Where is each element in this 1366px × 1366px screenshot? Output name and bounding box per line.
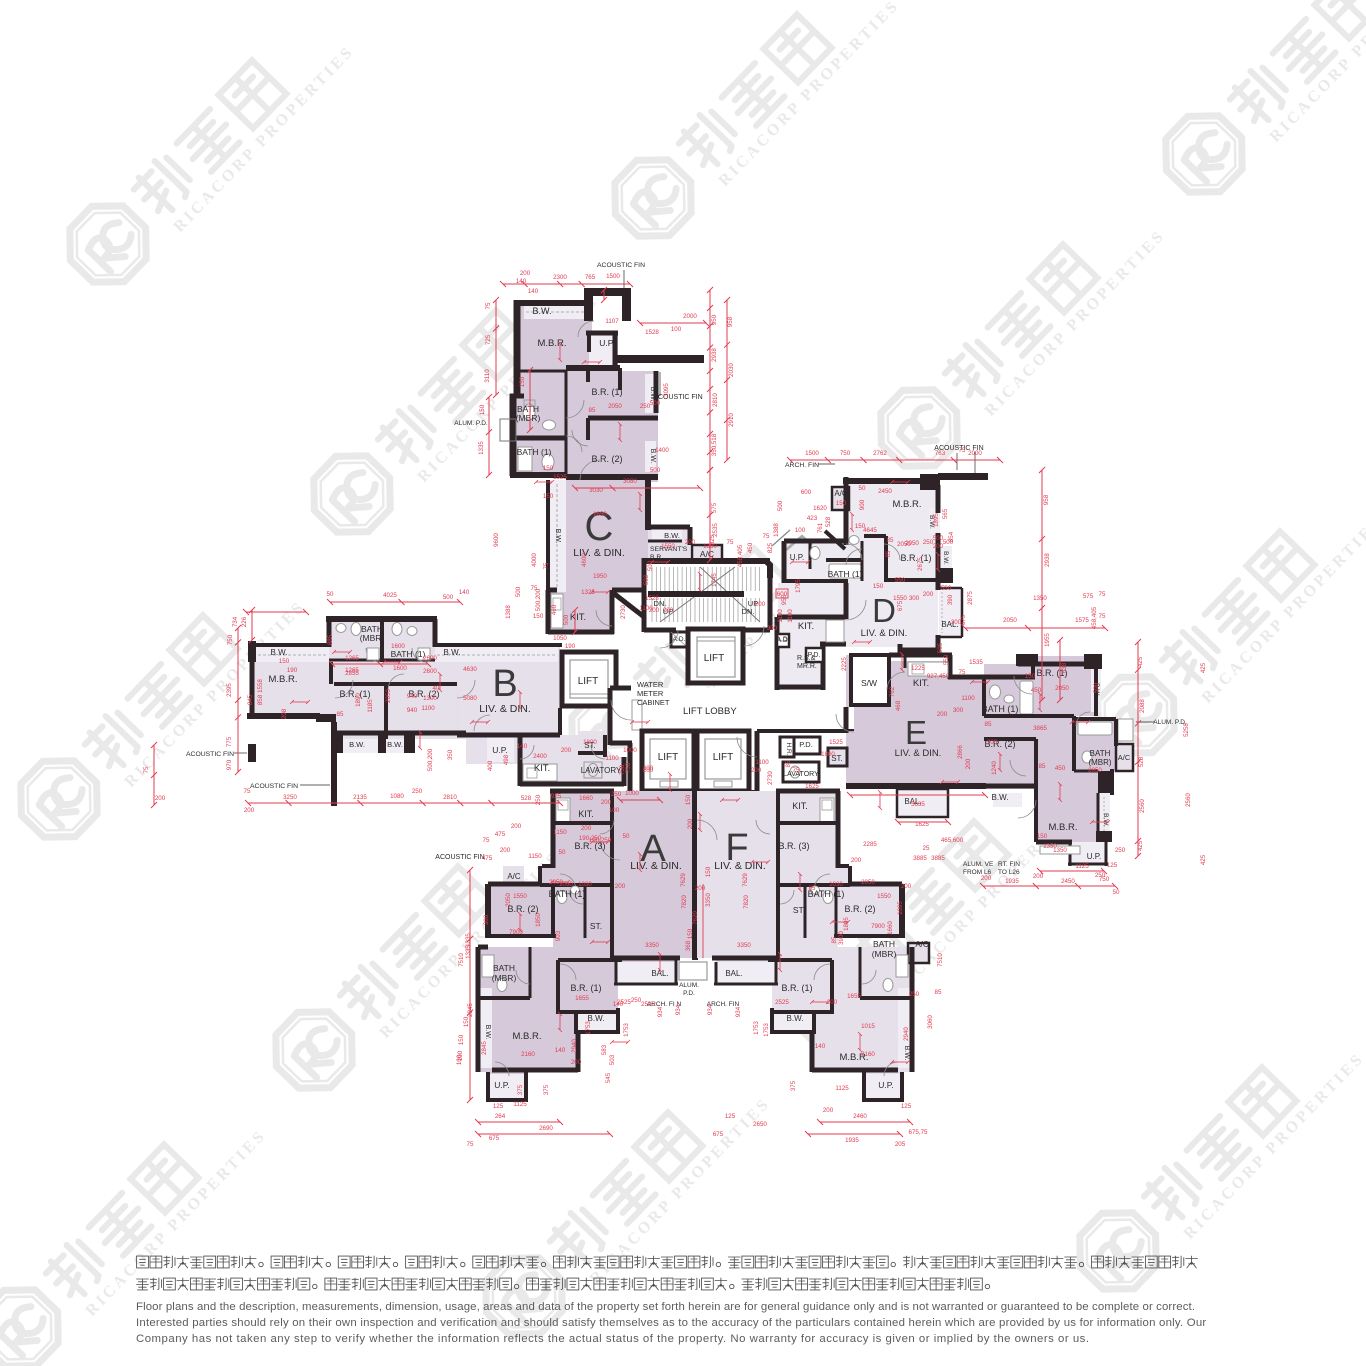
svg-text:500,200: 500,200 xyxy=(427,748,434,771)
svg-text:1335: 1335 xyxy=(465,933,472,947)
svg-text:208: 208 xyxy=(281,708,288,719)
svg-text:U.P.: U.P. xyxy=(494,1080,509,1090)
svg-text:955: 955 xyxy=(781,594,788,605)
svg-text:125: 125 xyxy=(493,1103,504,1110)
svg-text:934: 934 xyxy=(657,1006,664,1017)
svg-text:140: 140 xyxy=(516,278,527,285)
svg-text:200: 200 xyxy=(685,539,696,546)
svg-text:2050: 2050 xyxy=(1055,685,1069,692)
svg-text:375: 375 xyxy=(790,1080,797,1091)
svg-text:200: 200 xyxy=(155,795,166,802)
svg-text:3885: 3885 xyxy=(931,855,945,862)
svg-text:1528: 1528 xyxy=(645,329,659,336)
svg-text:75: 75 xyxy=(959,669,966,676)
svg-text:675: 675 xyxy=(489,1135,500,1142)
svg-text:200: 200 xyxy=(751,767,762,774)
svg-text:368: 368 xyxy=(685,940,692,951)
svg-text:100: 100 xyxy=(671,326,682,333)
svg-text:75: 75 xyxy=(483,837,490,844)
svg-text:1660: 1660 xyxy=(887,921,894,935)
svg-text:7629: 7629 xyxy=(680,873,687,887)
svg-text:550: 550 xyxy=(895,577,906,584)
svg-text:200: 200 xyxy=(695,885,706,892)
svg-text:2866: 2866 xyxy=(957,745,964,759)
svg-text:2560: 2560 xyxy=(1139,799,1146,813)
svg-text:LIFT: LIFT xyxy=(658,752,679,763)
svg-text:250: 250 xyxy=(412,788,423,795)
svg-text:734: 734 xyxy=(232,616,239,627)
svg-text:U.P.: U.P. xyxy=(599,338,614,348)
svg-text:P.D.: P.D. xyxy=(683,990,695,997)
svg-text:M.B.R.: M.B.R. xyxy=(537,338,566,349)
svg-text:125: 125 xyxy=(1107,862,1118,869)
svg-text:150: 150 xyxy=(705,866,712,877)
svg-text:LIFT: LIFT xyxy=(704,653,725,664)
svg-text:1850: 1850 xyxy=(535,913,542,927)
svg-text:1100: 1100 xyxy=(777,609,784,623)
svg-text:2160: 2160 xyxy=(861,1051,875,1058)
svg-text:1125: 1125 xyxy=(835,1085,849,1092)
svg-text:1000: 1000 xyxy=(625,790,639,797)
svg-text:1225: 1225 xyxy=(911,665,925,672)
svg-text:B.W.: B.W. xyxy=(349,740,365,749)
svg-text:2525: 2525 xyxy=(641,1001,655,1008)
svg-text:1325: 1325 xyxy=(581,589,595,596)
svg-text:2460: 2460 xyxy=(853,1113,867,1120)
svg-text:1795: 1795 xyxy=(795,579,802,593)
svg-text:2650: 2650 xyxy=(753,1121,767,1128)
svg-text:140: 140 xyxy=(815,1043,826,1050)
svg-text:1660: 1660 xyxy=(579,795,593,802)
svg-text:450: 450 xyxy=(1055,765,1066,772)
svg-text:1150: 1150 xyxy=(553,829,567,836)
svg-text:B.R. (2): B.R. (2) xyxy=(507,904,538,914)
svg-text:1753: 1753 xyxy=(623,1023,630,1037)
svg-text:1500: 1500 xyxy=(606,273,620,280)
svg-text:B.W.: B.W. xyxy=(387,740,403,749)
svg-text:3350: 3350 xyxy=(737,942,751,949)
svg-text:300: 300 xyxy=(951,619,962,626)
svg-text:1300: 1300 xyxy=(423,695,437,702)
svg-text:475: 475 xyxy=(495,831,506,838)
svg-text:TO L26: TO L26 xyxy=(998,869,1020,876)
svg-text:100: 100 xyxy=(609,807,620,814)
svg-text:2525: 2525 xyxy=(775,999,789,1006)
svg-text:150: 150 xyxy=(1037,833,1048,840)
svg-text:M.B.R.: M.B.R. xyxy=(512,1031,541,1042)
svg-text:WATER: WATER xyxy=(637,680,664,689)
svg-text:200: 200 xyxy=(965,758,972,769)
svg-text:ST.: ST. xyxy=(590,921,602,931)
svg-text:2910: 2910 xyxy=(728,413,735,427)
svg-text:1015: 1015 xyxy=(861,1023,875,1030)
svg-text:200: 200 xyxy=(581,825,592,832)
svg-text:250: 250 xyxy=(909,991,920,998)
svg-text:50: 50 xyxy=(327,591,334,598)
svg-text:P.D.: P.D. xyxy=(808,652,821,659)
svg-text:2285: 2285 xyxy=(863,841,877,848)
svg-text:638: 638 xyxy=(1061,662,1068,673)
svg-text:250: 250 xyxy=(611,791,622,798)
svg-text:B.W.: B.W. xyxy=(1102,813,1109,827)
svg-text:200: 200 xyxy=(923,591,934,598)
svg-text:1890: 1890 xyxy=(355,693,362,707)
svg-text:50: 50 xyxy=(559,849,566,856)
svg-text:BATH (1): BATH (1) xyxy=(828,569,863,579)
svg-text:500: 500 xyxy=(563,614,570,625)
svg-text:E: E xyxy=(905,714,927,751)
svg-text:205: 205 xyxy=(895,1141,906,1148)
svg-text:925: 925 xyxy=(551,793,562,800)
svg-text:458,405: 458,405 xyxy=(737,544,744,567)
svg-text:250: 250 xyxy=(535,794,542,805)
svg-text:763: 763 xyxy=(935,450,946,457)
svg-text:190,250: 190,250 xyxy=(589,837,612,844)
svg-text:600: 600 xyxy=(801,489,812,496)
svg-text:75: 75 xyxy=(244,788,251,795)
svg-text:2940: 2940 xyxy=(571,1039,578,1053)
svg-text:75: 75 xyxy=(467,1141,474,1148)
svg-text:ST.: ST. xyxy=(793,905,805,915)
svg-text:1655: 1655 xyxy=(847,993,861,1000)
svg-text:B.W.: B.W. xyxy=(903,1046,910,1061)
svg-text:300: 300 xyxy=(767,625,778,632)
svg-text:1558: 1558 xyxy=(257,679,264,693)
svg-text:500: 500 xyxy=(943,539,954,546)
svg-text:75: 75 xyxy=(793,767,800,774)
svg-text:A/C: A/C xyxy=(507,872,521,881)
svg-text:550: 550 xyxy=(941,585,952,592)
svg-text:LIV. & DIN.: LIV. & DIN. xyxy=(479,703,531,715)
svg-text:1185: 1185 xyxy=(367,699,374,713)
svg-text:675,75: 675,75 xyxy=(909,1129,928,1136)
svg-text:ACOUSTIC FIN: ACOUSTIC FIN xyxy=(250,783,298,790)
svg-text:375: 375 xyxy=(543,1084,550,1095)
svg-text:2135: 2135 xyxy=(353,794,367,801)
svg-text:LIV. & DIN.: LIV. & DIN. xyxy=(895,748,942,759)
svg-text:885: 885 xyxy=(327,634,334,645)
svg-text:200: 200 xyxy=(987,739,998,746)
svg-text:190: 190 xyxy=(287,667,298,674)
svg-text:KIT.: KIT. xyxy=(798,621,814,632)
svg-text:1528: 1528 xyxy=(645,595,659,602)
svg-text:50: 50 xyxy=(623,833,630,840)
svg-text:528: 528 xyxy=(1138,756,1145,767)
svg-text:1550: 1550 xyxy=(877,893,891,900)
svg-text:1625: 1625 xyxy=(805,783,819,790)
svg-text:940: 940 xyxy=(407,693,418,700)
svg-text:475: 475 xyxy=(482,855,493,862)
svg-text:(MBR): (MBR) xyxy=(360,633,385,643)
svg-text:1895: 1895 xyxy=(933,513,940,527)
svg-text:M.B.R.: M.B.R. xyxy=(268,674,297,685)
svg-text:450: 450 xyxy=(1031,687,1042,694)
svg-text:2600: 2600 xyxy=(423,668,437,675)
svg-text:450: 450 xyxy=(747,542,754,553)
svg-text:350,518: 350,518 xyxy=(711,433,718,456)
svg-text:845: 845 xyxy=(247,694,254,705)
svg-text:4025: 4025 xyxy=(383,592,397,599)
svg-text:300: 300 xyxy=(909,595,920,602)
svg-text:1600: 1600 xyxy=(393,665,407,672)
svg-text:7510: 7510 xyxy=(937,953,944,967)
svg-text:2875: 2875 xyxy=(967,591,974,605)
svg-text:LAVATORY: LAVATORY xyxy=(783,771,819,778)
svg-text:545: 545 xyxy=(605,1072,612,1083)
svg-text:200: 200 xyxy=(601,799,612,806)
svg-text:5258: 5258 xyxy=(1183,723,1190,737)
svg-text:500: 500 xyxy=(515,586,522,597)
svg-text:B.W.: B.W. xyxy=(942,551,949,565)
svg-text:BATH (1): BATH (1) xyxy=(549,889,586,899)
svg-text:300: 300 xyxy=(953,707,964,714)
svg-text:498: 498 xyxy=(503,754,510,765)
svg-text:ACOUSTIC FIN: ACOUSTIC FIN xyxy=(597,262,645,269)
svg-text:200: 200 xyxy=(561,747,572,754)
svg-text:7900: 7900 xyxy=(871,923,885,930)
svg-text:675: 675 xyxy=(713,1131,724,1138)
svg-text:BATH (1): BATH (1) xyxy=(982,704,1019,714)
svg-text:150: 150 xyxy=(836,500,847,507)
svg-text:85: 85 xyxy=(831,936,838,943)
svg-text:B.W.: B.W. xyxy=(484,1025,491,1040)
svg-text:1955: 1955 xyxy=(1044,633,1051,647)
svg-text:B.R. (1): B.R. (1) xyxy=(591,387,622,397)
svg-text:1265: 1265 xyxy=(345,655,359,662)
svg-text:A/C: A/C xyxy=(1118,753,1131,762)
svg-text:559: 559 xyxy=(943,654,950,665)
svg-text:1400: 1400 xyxy=(655,447,669,454)
svg-text:200: 200 xyxy=(901,883,912,890)
svg-text:75: 75 xyxy=(763,533,770,540)
svg-text:2225: 2225 xyxy=(841,657,848,671)
svg-text:2450: 2450 xyxy=(1061,878,1075,885)
svg-text:200: 200 xyxy=(823,1107,834,1114)
svg-text:3110: 3110 xyxy=(484,369,491,383)
svg-text:3080: 3080 xyxy=(623,478,637,485)
svg-text:BATH: BATH xyxy=(873,939,895,949)
svg-text:7900: 7900 xyxy=(509,929,523,936)
svg-text:LIFT: LIFT xyxy=(578,676,599,687)
svg-text:7620: 7620 xyxy=(692,911,699,925)
svg-text:2160: 2160 xyxy=(521,1051,535,1058)
svg-text:KIT.: KIT. xyxy=(792,801,808,811)
svg-text:4000: 4000 xyxy=(531,553,538,567)
svg-text:DN.: DN. xyxy=(742,607,755,616)
svg-text:1525: 1525 xyxy=(829,739,843,746)
svg-text:1753: 1753 xyxy=(763,1023,770,1037)
svg-text:75: 75 xyxy=(543,562,550,569)
svg-text:150: 150 xyxy=(543,493,554,500)
svg-text:CABINET: CABINET xyxy=(637,698,670,707)
svg-text:200: 200 xyxy=(500,847,511,854)
svg-text:2300: 2300 xyxy=(553,274,567,281)
svg-text:1095: 1095 xyxy=(897,901,904,915)
svg-text:503: 503 xyxy=(643,574,650,585)
svg-text:150: 150 xyxy=(873,583,884,590)
svg-text:1125: 1125 xyxy=(1075,863,1089,870)
svg-text:1600: 1600 xyxy=(391,643,405,650)
svg-text:B.R. (1): B.R. (1) xyxy=(570,983,601,993)
svg-text:468: 468 xyxy=(895,700,902,711)
svg-text:400: 400 xyxy=(487,760,494,771)
svg-text:775: 775 xyxy=(226,736,233,747)
svg-text:500: 500 xyxy=(650,400,661,407)
svg-text:1800: 1800 xyxy=(583,739,597,746)
svg-text:75: 75 xyxy=(1099,591,1106,598)
svg-text:RT. FIN: RT. FIN xyxy=(998,861,1020,868)
svg-text:675: 675 xyxy=(897,600,904,611)
svg-text:1500: 1500 xyxy=(805,450,819,457)
svg-text:KIT.: KIT. xyxy=(570,612,586,623)
svg-text:226: 226 xyxy=(241,616,248,627)
svg-text:970: 970 xyxy=(226,759,233,770)
svg-text:BATH (1): BATH (1) xyxy=(517,447,552,457)
svg-text:150: 150 xyxy=(479,404,486,415)
svg-text:125: 125 xyxy=(901,1103,912,1110)
svg-text:1388: 1388 xyxy=(773,523,780,537)
svg-text:150: 150 xyxy=(463,1016,470,1027)
svg-text:7820: 7820 xyxy=(743,895,750,909)
svg-text:1575: 1575 xyxy=(1075,617,1089,624)
svg-text:2730: 2730 xyxy=(620,605,627,619)
svg-text:200: 200 xyxy=(687,818,694,829)
svg-text:1050: 1050 xyxy=(553,635,567,642)
svg-text:1525: 1525 xyxy=(553,474,567,481)
svg-text:458,405: 458,405 xyxy=(1091,606,1098,629)
svg-text:2050: 2050 xyxy=(897,541,911,548)
svg-text:250: 250 xyxy=(631,997,642,1004)
svg-text:Interested parties should rely: Interested parties should rely on their … xyxy=(136,1317,1206,1329)
svg-text:190: 190 xyxy=(565,643,576,650)
svg-text:(MBR): (MBR) xyxy=(872,949,897,959)
svg-text:140: 140 xyxy=(555,1047,566,1054)
svg-text:KIT.: KIT. xyxy=(578,809,594,819)
svg-text:(MBR): (MBR) xyxy=(1088,758,1111,767)
svg-text:250: 250 xyxy=(1095,872,1106,879)
svg-text:1753: 1753 xyxy=(585,1021,592,1035)
svg-text:75: 75 xyxy=(727,539,734,546)
svg-text:1620: 1620 xyxy=(813,505,827,512)
svg-text:2000: 2000 xyxy=(683,313,697,320)
svg-text:140: 140 xyxy=(459,589,470,596)
svg-text:765: 765 xyxy=(585,274,596,281)
svg-text:1350: 1350 xyxy=(1033,595,1047,602)
svg-text:H.R.: H.R. xyxy=(785,743,792,756)
svg-text:ACOUSTIC FIN: ACOUSTIC FIN xyxy=(653,394,702,401)
svg-text:425: 425 xyxy=(1200,854,1207,865)
svg-text:1030: 1030 xyxy=(578,881,592,888)
svg-text:150: 150 xyxy=(279,658,290,665)
svg-text:LIV. & DIN.: LIV. & DIN. xyxy=(630,860,682,872)
svg-text:75: 75 xyxy=(531,585,538,592)
svg-text:M.B.R.: M.B.R. xyxy=(1048,822,1077,833)
svg-text:2050: 2050 xyxy=(505,893,512,907)
svg-text:1550: 1550 xyxy=(513,893,527,900)
svg-text:200: 200 xyxy=(937,711,948,718)
svg-text:B.W.: B.W. xyxy=(554,529,561,544)
svg-text:2938: 2938 xyxy=(711,348,718,362)
svg-text:MR.R.: MR.R. xyxy=(797,663,817,670)
svg-text:575: 575 xyxy=(711,502,718,513)
svg-text:1535: 1535 xyxy=(969,659,983,666)
svg-text:B: B xyxy=(492,663,517,705)
svg-text:3350: 3350 xyxy=(645,942,659,949)
svg-text:3030: 3030 xyxy=(589,487,603,494)
svg-text:950: 950 xyxy=(711,314,718,325)
svg-text:460: 460 xyxy=(551,604,558,615)
svg-text:85: 85 xyxy=(337,711,344,718)
svg-text:200: 200 xyxy=(571,1059,582,1066)
svg-text:858: 858 xyxy=(257,694,264,705)
svg-text:2400: 2400 xyxy=(533,753,547,760)
svg-text:1935: 1935 xyxy=(1005,878,1019,885)
svg-text:1935: 1935 xyxy=(845,1137,859,1144)
svg-text:1107: 1107 xyxy=(605,318,619,325)
svg-text:4645: 4645 xyxy=(863,527,877,534)
svg-text:1335: 1335 xyxy=(465,945,472,959)
svg-text:B.W.: B.W. xyxy=(664,531,680,540)
svg-text:1335: 1335 xyxy=(478,441,485,455)
svg-text:U.P.: U.P. xyxy=(492,745,507,755)
svg-text:140: 140 xyxy=(528,288,539,295)
svg-text:2050: 2050 xyxy=(549,879,563,886)
svg-text:ACOUSTIC FIN: ACOUSTIC FIN xyxy=(186,751,234,758)
svg-text:5635: 5635 xyxy=(911,801,925,808)
svg-text:B.R.: B.R. xyxy=(650,554,663,561)
svg-text:M.B.R.: M.B.R. xyxy=(892,499,921,510)
svg-text:75: 75 xyxy=(143,766,150,773)
svg-text:1150: 1150 xyxy=(528,853,542,860)
svg-text:528: 528 xyxy=(521,795,532,802)
svg-text:934: 934 xyxy=(675,1004,682,1015)
svg-text:3095: 3095 xyxy=(663,383,670,397)
svg-text:25: 25 xyxy=(923,845,930,852)
svg-text:375: 375 xyxy=(517,1084,524,1095)
svg-text:200: 200 xyxy=(851,857,862,864)
svg-text:528: 528 xyxy=(825,516,832,527)
svg-text:B.R. (3): B.R. (3) xyxy=(778,841,809,851)
svg-text:2395: 2395 xyxy=(226,683,233,697)
svg-text:BATH: BATH xyxy=(1090,749,1111,758)
svg-text:2810: 2810 xyxy=(712,393,719,407)
svg-text:750: 750 xyxy=(619,764,626,775)
svg-text:940: 940 xyxy=(407,707,418,714)
svg-text:B.R. (2): B.R. (2) xyxy=(591,454,622,464)
svg-text:100: 100 xyxy=(457,1050,464,1061)
svg-text:264: 264 xyxy=(495,1113,506,1120)
svg-text:2845: 2845 xyxy=(467,1003,474,1017)
svg-text:A/C: A/C xyxy=(915,940,929,949)
svg-text:1265: 1265 xyxy=(345,667,359,674)
svg-text:927,450: 927,450 xyxy=(927,673,950,680)
svg-text:9600: 9600 xyxy=(493,533,500,547)
svg-text:934: 934 xyxy=(735,1006,742,1017)
svg-text:LIFT: LIFT xyxy=(713,752,734,763)
svg-text:1000: 1000 xyxy=(623,747,637,754)
svg-text:KIT.: KIT. xyxy=(534,763,550,774)
svg-text:583: 583 xyxy=(601,1044,608,1055)
svg-text:500: 500 xyxy=(1093,682,1100,693)
svg-text:85: 85 xyxy=(1039,763,1046,770)
svg-text:U.P.: U.P. xyxy=(790,553,805,562)
svg-text:1350: 1350 xyxy=(1043,843,1057,850)
svg-text:565: 565 xyxy=(942,508,949,519)
svg-text:503: 503 xyxy=(609,1054,616,1065)
svg-text:500: 500 xyxy=(443,594,454,601)
svg-text:ALUM. VE: ALUM. VE xyxy=(963,861,994,868)
svg-text:350: 350 xyxy=(447,749,454,760)
